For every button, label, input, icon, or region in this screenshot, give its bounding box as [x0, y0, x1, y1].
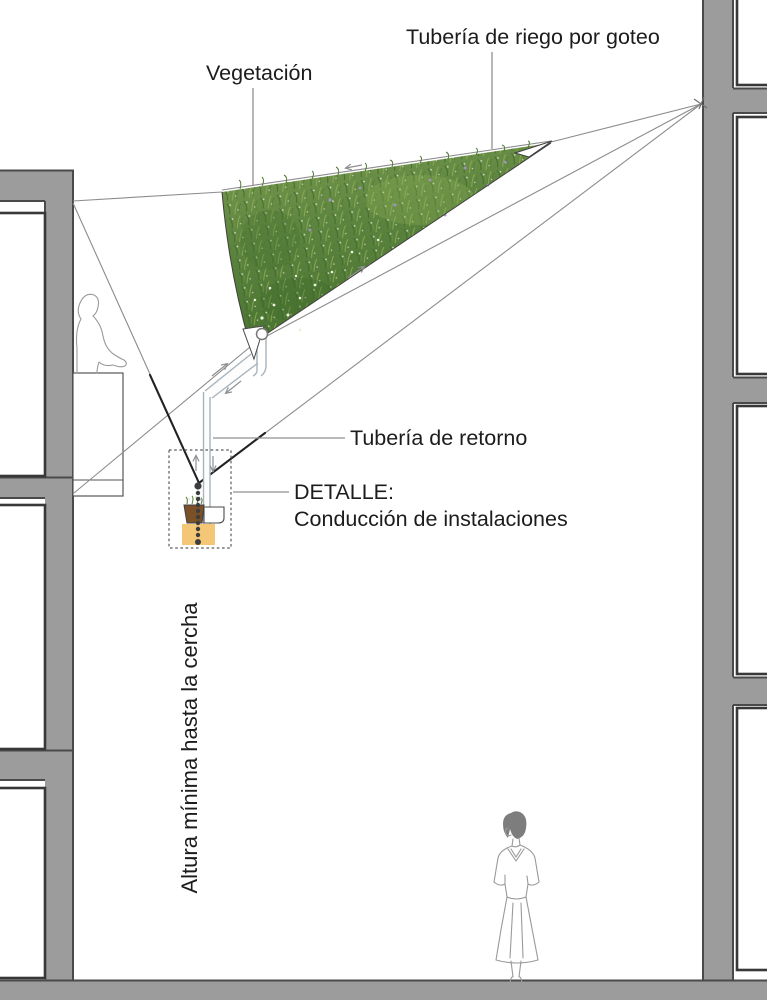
floor-slab: [0, 980, 767, 1000]
label-detail-heading: DETALLE:: [294, 480, 394, 504]
detail-planter: [184, 505, 204, 523]
label-min-height: Altura mínima hasta la cercha: [177, 602, 202, 894]
pipe-runs: [204, 338, 267, 524]
left-slab-low: [0, 750, 73, 780]
label-detail-description: Conducción de instalaciones: [294, 507, 568, 531]
label-vegetation: Vegetación: [206, 61, 312, 85]
hanging-garden: [210, 130, 570, 360]
drain-ring: [257, 329, 268, 340]
right-slab-a: [733, 88, 767, 113]
balcony-box: [73, 373, 123, 496]
flow-arrow-top-edge-icon: [346, 165, 362, 168]
cable-garden-tip-to-right-anchor: [551, 104, 701, 142]
right-column: [703, 0, 733, 1000]
left-slab-mid: [0, 477, 73, 498]
architectural-section-diagram: Tubería de riego por goteo Vegetación Tu…: [0, 0, 767, 1000]
detail-tub: [204, 507, 224, 523]
flow-arrow-supply-icon: [212, 364, 227, 376]
standing-figure: [494, 811, 539, 983]
left-column: [45, 170, 73, 1000]
right-slab-c: [733, 677, 767, 705]
left-opening-1: [0, 213, 45, 476]
left-opening-2: [0, 505, 45, 749]
right-slab-b: [733, 377, 767, 403]
label-return-pipe: Tubería de retorno: [350, 426, 527, 450]
right-wall: [703, 0, 767, 1000]
pipe-diagonal-fill: [205, 354, 257, 399]
label-drip-irrigation: Tubería de riego por goteo: [406, 25, 660, 49]
left-opening-3: [0, 788, 45, 978]
right-opening-3: [737, 708, 767, 970]
left-slab-top: [0, 170, 73, 201]
right-opening-1: [737, 117, 767, 374]
cable-left-anchor-to-garden-tip: [73, 192, 222, 201]
right-opening-2: [737, 406, 767, 674]
right-opening-0: [737, 0, 767, 85]
left-wall: [0, 170, 73, 1000]
pipe-vertical-fill: [204, 393, 211, 524]
